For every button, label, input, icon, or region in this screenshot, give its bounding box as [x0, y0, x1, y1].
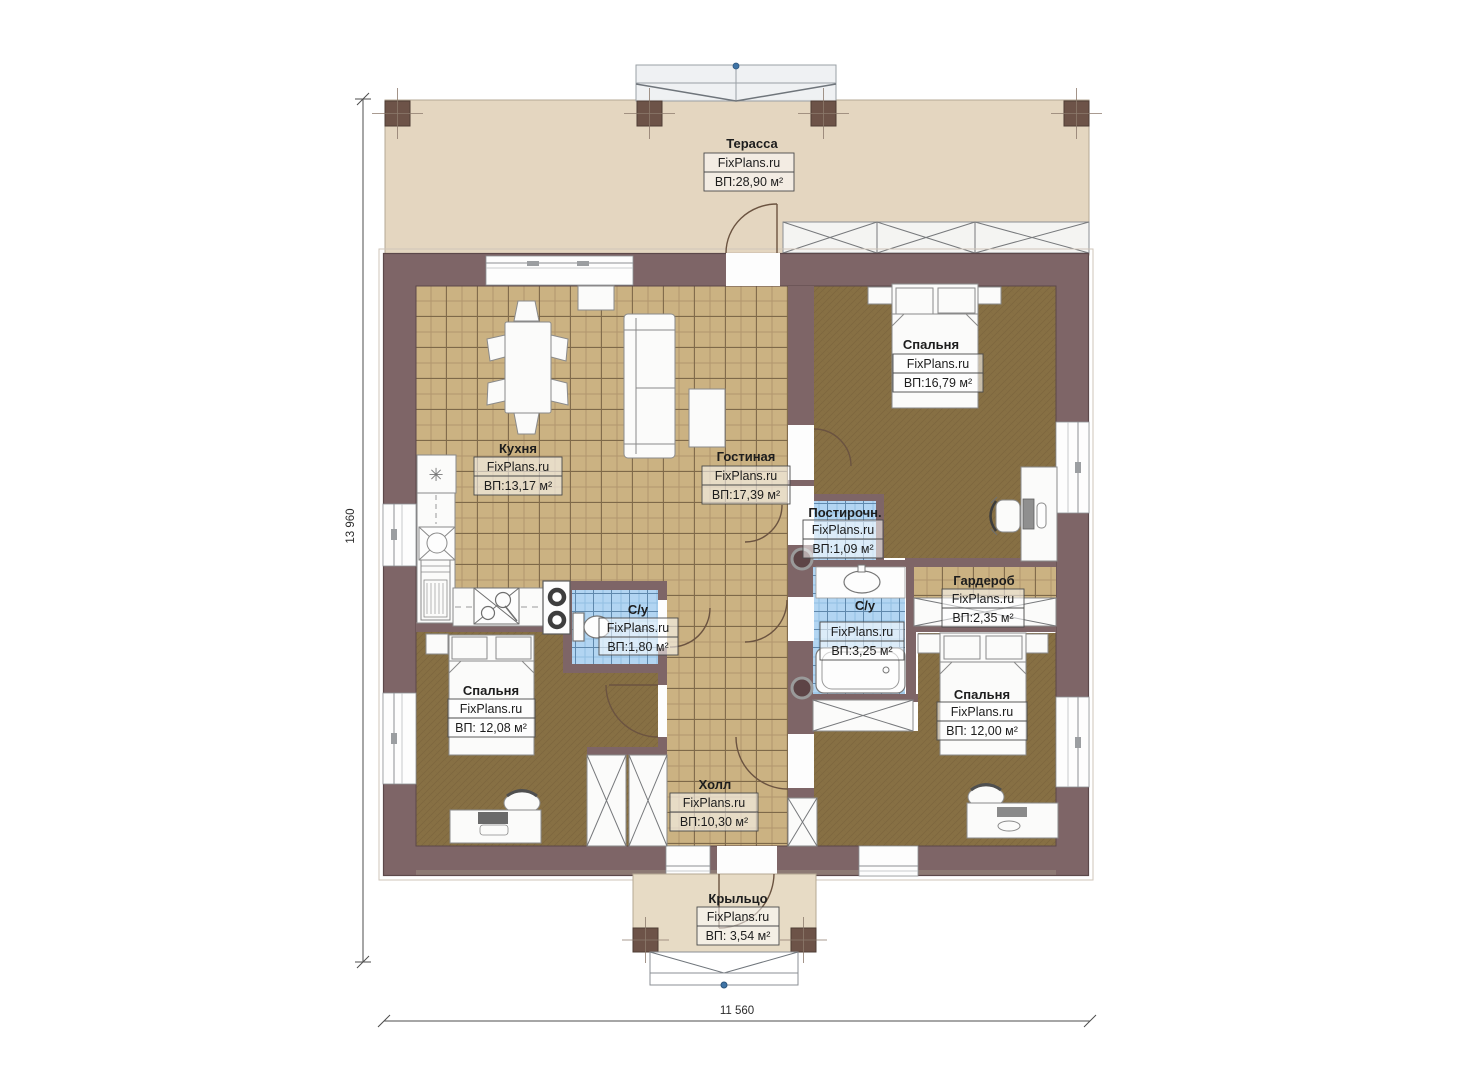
svg-text:FixPlans.ru: FixPlans.ru — [487, 460, 550, 474]
svg-text:FixPlans.ru: FixPlans.ru — [715, 469, 778, 483]
svg-text:Терасса: Терасса — [726, 136, 778, 151]
svg-text:ВП:28,90 м²: ВП:28,90 м² — [715, 175, 783, 189]
svg-text:FixPlans.ru: FixPlans.ru — [907, 357, 970, 371]
svg-text:Спальня: Спальня — [903, 337, 959, 352]
svg-text:ВП: 3,54 м²: ВП: 3,54 м² — [706, 929, 771, 943]
svg-text:Спальня: Спальня — [954, 687, 1010, 702]
svg-text:FixPlans.ru: FixPlans.ru — [683, 796, 746, 810]
svg-text:FixPlans.ru: FixPlans.ru — [952, 592, 1015, 606]
svg-text:FixPlans.ru: FixPlans.ru — [831, 625, 894, 639]
svg-text:ВП:17,39 м²: ВП:17,39 м² — [712, 488, 780, 502]
svg-text:ВП:10,30 м²: ВП:10,30 м² — [680, 815, 748, 829]
svg-text:ВП:2,35 м²: ВП:2,35 м² — [952, 611, 1013, 625]
svg-text:13 960: 13 960 — [345, 508, 357, 543]
svg-text:Гардероб: Гардероб — [953, 573, 1014, 588]
svg-text:Гостиная: Гостиная — [717, 449, 776, 464]
svg-text:FixPlans.ru: FixPlans.ru — [951, 705, 1014, 719]
svg-text:FixPlans.ru: FixPlans.ru — [812, 523, 875, 537]
svg-text:ВП:16,79 м²: ВП:16,79 м² — [904, 376, 972, 390]
svg-text:FixPlans.ru: FixPlans.ru — [718, 156, 781, 170]
svg-text:Кухня: Кухня — [499, 441, 537, 456]
svg-text:Холл: Холл — [699, 777, 732, 792]
svg-text:FixPlans.ru: FixPlans.ru — [460, 702, 523, 716]
svg-text:Спальня: Спальня — [463, 683, 519, 698]
svg-text:FixPlans.ru: FixPlans.ru — [707, 910, 770, 924]
svg-text:✳: ✳ — [428, 465, 443, 485]
svg-text:С/у: С/у — [628, 602, 649, 617]
svg-text:С/у: С/у — [855, 598, 876, 613]
svg-text:ВП: 12,08 м²: ВП: 12,08 м² — [455, 721, 527, 735]
svg-text:11 560: 11 560 — [720, 1005, 754, 1017]
svg-text:ВП:13,17 м²: ВП:13,17 м² — [484, 479, 552, 493]
svg-text:ВП:3,25 м²: ВП:3,25 м² — [831, 644, 892, 658]
svg-text:ВП: 12,00 м²: ВП: 12,00 м² — [946, 724, 1018, 738]
svg-text:FixPlans.ru: FixPlans.ru — [607, 621, 670, 635]
svg-text:ВП:1,80 м²: ВП:1,80 м² — [607, 640, 668, 654]
svg-text:Крыльцо: Крыльцо — [708, 891, 767, 906]
svg-text:Постирочн.: Постирочн. — [808, 505, 881, 520]
svg-text:ВП:1,09 м²: ВП:1,09 м² — [812, 542, 873, 556]
